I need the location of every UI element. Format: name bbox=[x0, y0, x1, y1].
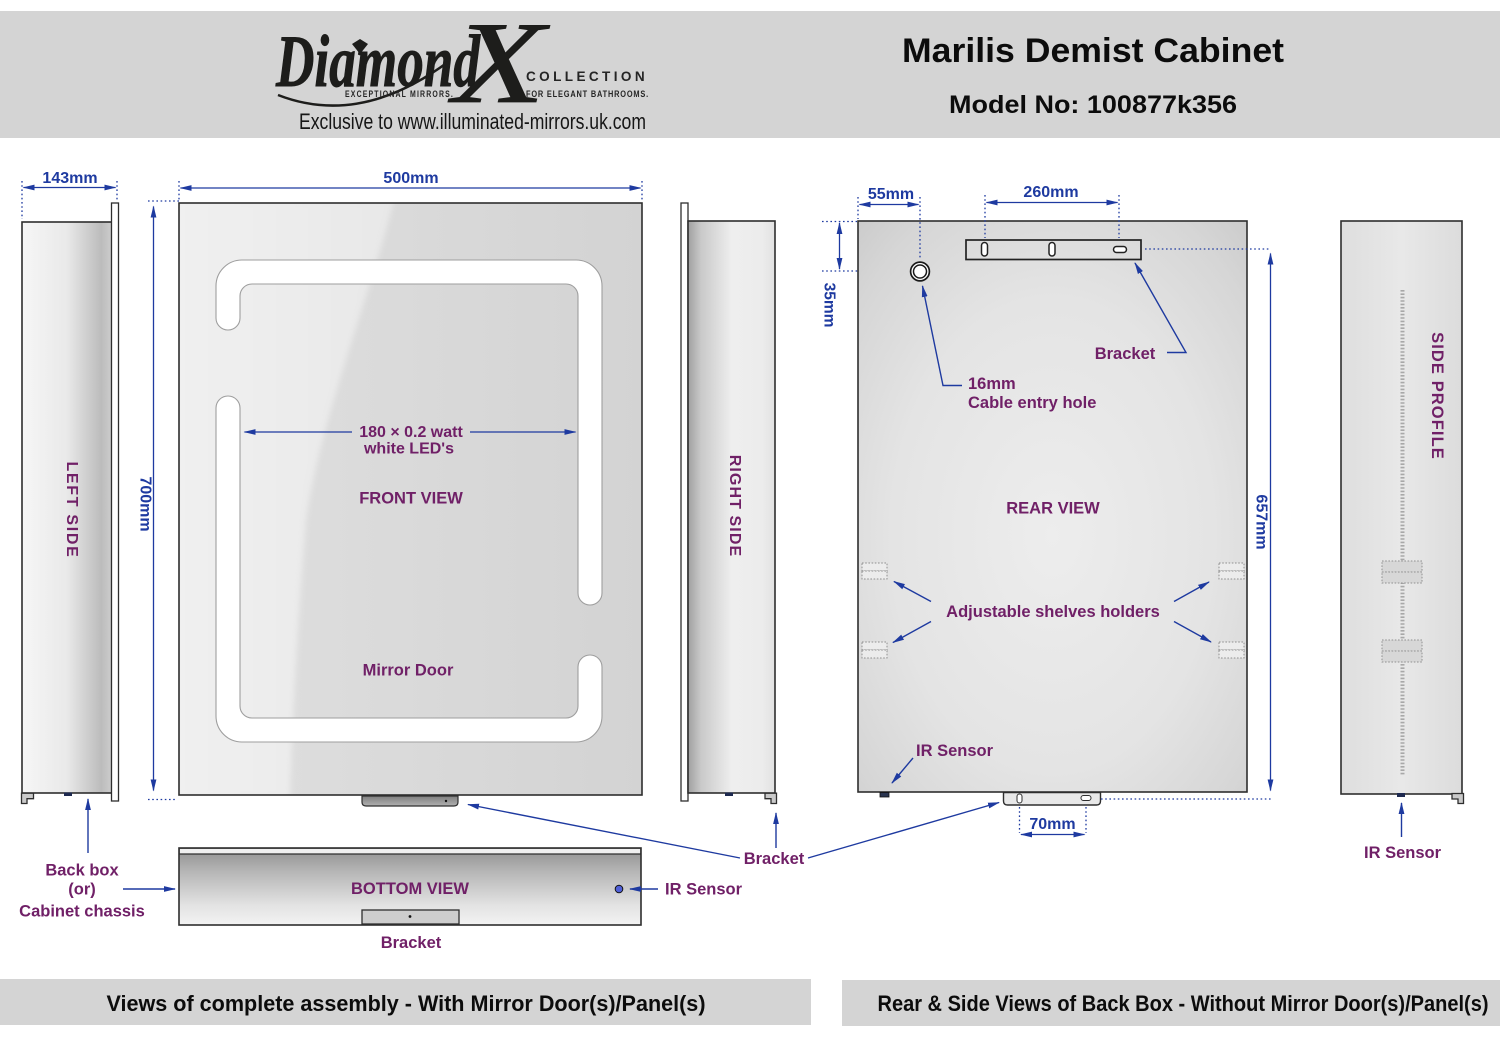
svg-text:Exclusive to www.illuminated-m: Exclusive to www.illuminated-mirrors.uk.… bbox=[299, 109, 646, 134]
svg-text:Views of complete assembly - W: Views of complete assembly - With Mirror… bbox=[107, 991, 706, 1016]
svg-text:FRONT VIEW: FRONT VIEW bbox=[359, 490, 463, 508]
svg-text:(or): (or) bbox=[68, 881, 96, 899]
svg-text:35mm: 35mm bbox=[821, 283, 838, 328]
svg-text:55mm: 55mm bbox=[868, 186, 914, 203]
svg-text:FOR ELEGANT BATHROOMS.: FOR ELEGANT BATHROOMS. bbox=[526, 89, 649, 99]
svg-text:Model No: 100877k356: Model No: 100877k356 bbox=[949, 91, 1237, 119]
svg-text:Adjustable shelves holders: Adjustable shelves holders bbox=[946, 603, 1160, 621]
svg-text:IR Sensor: IR Sensor bbox=[665, 881, 743, 899]
svg-text:Bracket: Bracket bbox=[381, 934, 442, 952]
svg-text:Bracket: Bracket bbox=[744, 850, 805, 868]
svg-text:Rear & Side Views of Back Box: Rear & Side Views of Back Box - Without … bbox=[878, 991, 1489, 1016]
svg-text:LEFT SIDE: LEFT SIDE bbox=[63, 461, 80, 558]
svg-text:500mm: 500mm bbox=[383, 170, 438, 187]
svg-text:657mm: 657mm bbox=[1253, 494, 1270, 549]
svg-text:IR Sensor: IR Sensor bbox=[916, 742, 994, 760]
svg-text:143mm: 143mm bbox=[42, 170, 97, 187]
svg-text:70mm: 70mm bbox=[1029, 816, 1075, 833]
svg-text:180 × 0.2 watt: 180 × 0.2 watt bbox=[359, 424, 463, 441]
svg-text:EXCEPTIONAL MIRRORS.: EXCEPTIONAL MIRRORS. bbox=[345, 89, 454, 99]
svg-text:16mm: 16mm bbox=[968, 375, 1016, 393]
svg-text:white LED's: white LED's bbox=[363, 441, 454, 458]
svg-text:SIDE PROFILE: SIDE PROFILE bbox=[1428, 332, 1446, 460]
svg-text:Cable entry hole: Cable entry hole bbox=[968, 394, 1096, 412]
svg-text:COLLECTION: COLLECTION bbox=[526, 68, 648, 84]
svg-text:Bracket: Bracket bbox=[1095, 345, 1156, 363]
svg-text:Mirror Door: Mirror Door bbox=[363, 662, 454, 680]
svg-text:260mm: 260mm bbox=[1023, 184, 1078, 201]
svg-text:Back box: Back box bbox=[45, 862, 119, 880]
svg-text:REAR VIEW: REAR VIEW bbox=[1006, 500, 1100, 518]
svg-text:RIGHT SIDE: RIGHT SIDE bbox=[726, 455, 743, 558]
svg-text:IR Sensor: IR Sensor bbox=[1364, 844, 1442, 862]
svg-text:BOTTOM VIEW: BOTTOM VIEW bbox=[351, 880, 469, 898]
svg-text:700mm: 700mm bbox=[137, 476, 154, 531]
svg-text:Cabinet chassis: Cabinet chassis bbox=[19, 903, 145, 921]
svg-text:Marilis Demist Cabinet: Marilis Demist Cabinet bbox=[902, 32, 1284, 70]
